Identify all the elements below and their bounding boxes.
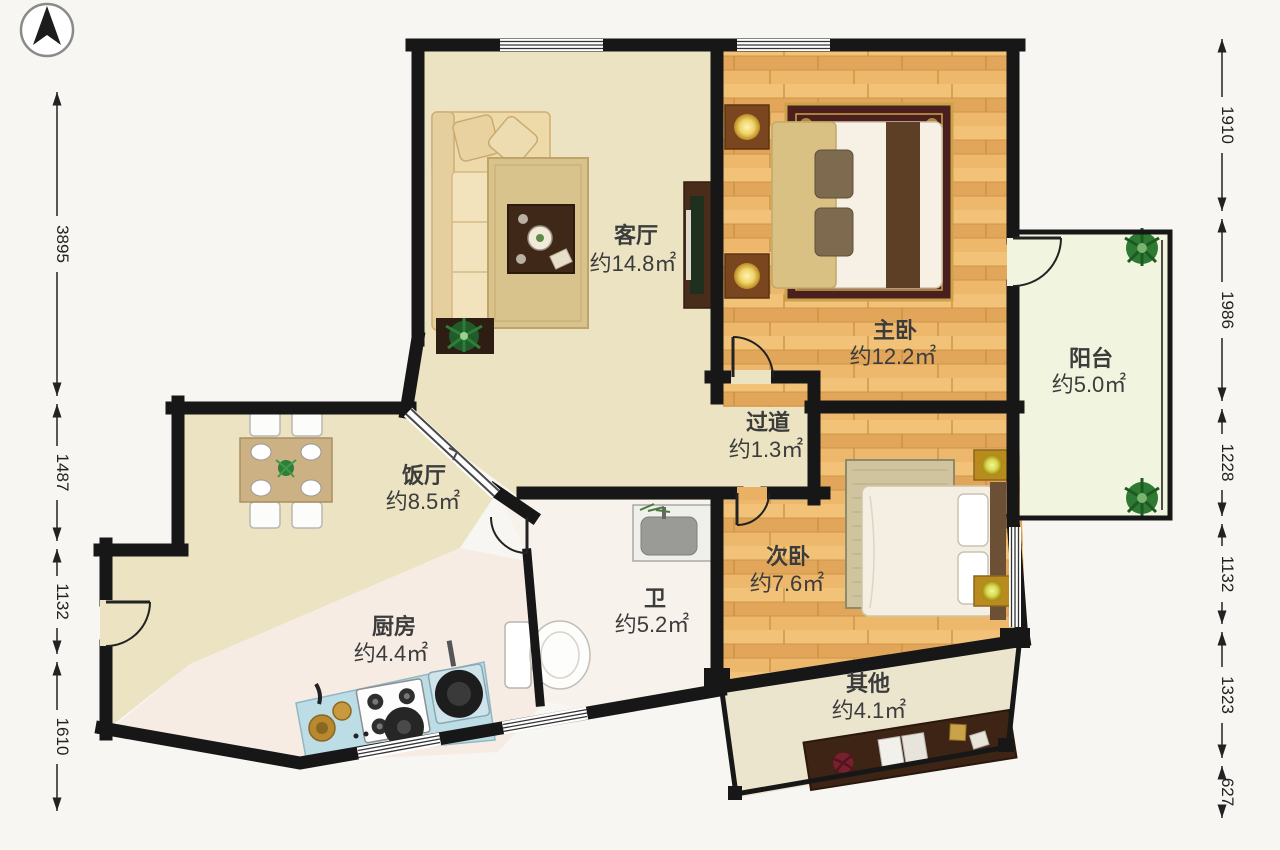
label-master-name: 主卧 [873,318,917,343]
pot [333,702,351,720]
label-dining-area: 约8.5㎡ [386,489,461,514]
dim-left-4: 1610 [53,718,72,756]
dim-left-3: 1132 [53,583,72,620]
nightstand-lamp [725,254,769,298]
dim-right-6: 627 [1218,778,1237,806]
label-kitchen-area: 约4.4㎡ [354,641,429,666]
coffee-table [508,205,574,273]
dimension-right-labels: 1910 1986 1228 1132 1323 627 [1218,106,1237,806]
dim-right-3: 1228 [1218,444,1237,482]
dim-left-2: 1487 [53,454,72,492]
living-plant [436,318,494,354]
label-balcony-name: 阳台 [1069,346,1113,371]
dim-left-1: 3895 [53,225,72,263]
label-other-name: 其他 [846,671,890,696]
dim-right-4: 1132 [1218,556,1237,593]
label-bath-area: 约5.2㎡ [615,612,690,637]
label-living-name: 客厅 [614,223,658,248]
label-second-name: 次卧 [766,544,810,569]
label-bath-name: 卫 [644,586,666,611]
label-hall-name: 过道 [746,410,790,435]
compass-north-icon [21,4,73,56]
window-master-top [737,39,830,51]
floor-plan-page: 客厅 约14.8㎡ 主卧 约12.2㎡ 阳台 约5.0㎡ 过道 约1.3㎡ 饭厅… [0,0,1280,850]
label-kitchen-name: 厨房 [372,614,416,639]
label-master-area: 约12.2㎡ [850,344,937,369]
window-living-top [500,39,603,51]
dining-table [240,438,332,502]
floor-plan: 客厅 约14.8㎡ 主卧 约12.2㎡ 阳台 约5.0㎡ 过道 约1.3㎡ 饭厅… [0,0,1280,850]
label-balcony-area: 约5.0㎡ [1052,372,1127,397]
dimension-left-labels: 3895 1487 1132 1610 [53,225,72,755]
label-other-area: 约4.1㎡ [832,698,907,723]
label-hall-area: 约1.3㎡ [729,437,804,462]
nightstand-lamp [974,450,1010,480]
nightstand-lamp [725,105,769,149]
dim-right-1: 1910 [1218,106,1237,144]
dim-right-2: 1986 [1218,291,1237,329]
label-second-area: 约7.6㎡ [750,571,825,596]
bathroom-sink [633,504,715,561]
dim-right-5: 1323 [1218,676,1237,714]
tv-cabinet [684,182,714,308]
window-second-right [1009,527,1021,627]
toilet [505,621,590,689]
label-dining-name: 饭厅 [402,463,446,488]
label-living-area: 约14.8㎡ [590,251,677,276]
master-bed [772,122,942,288]
nightstand-lamp [974,576,1010,606]
